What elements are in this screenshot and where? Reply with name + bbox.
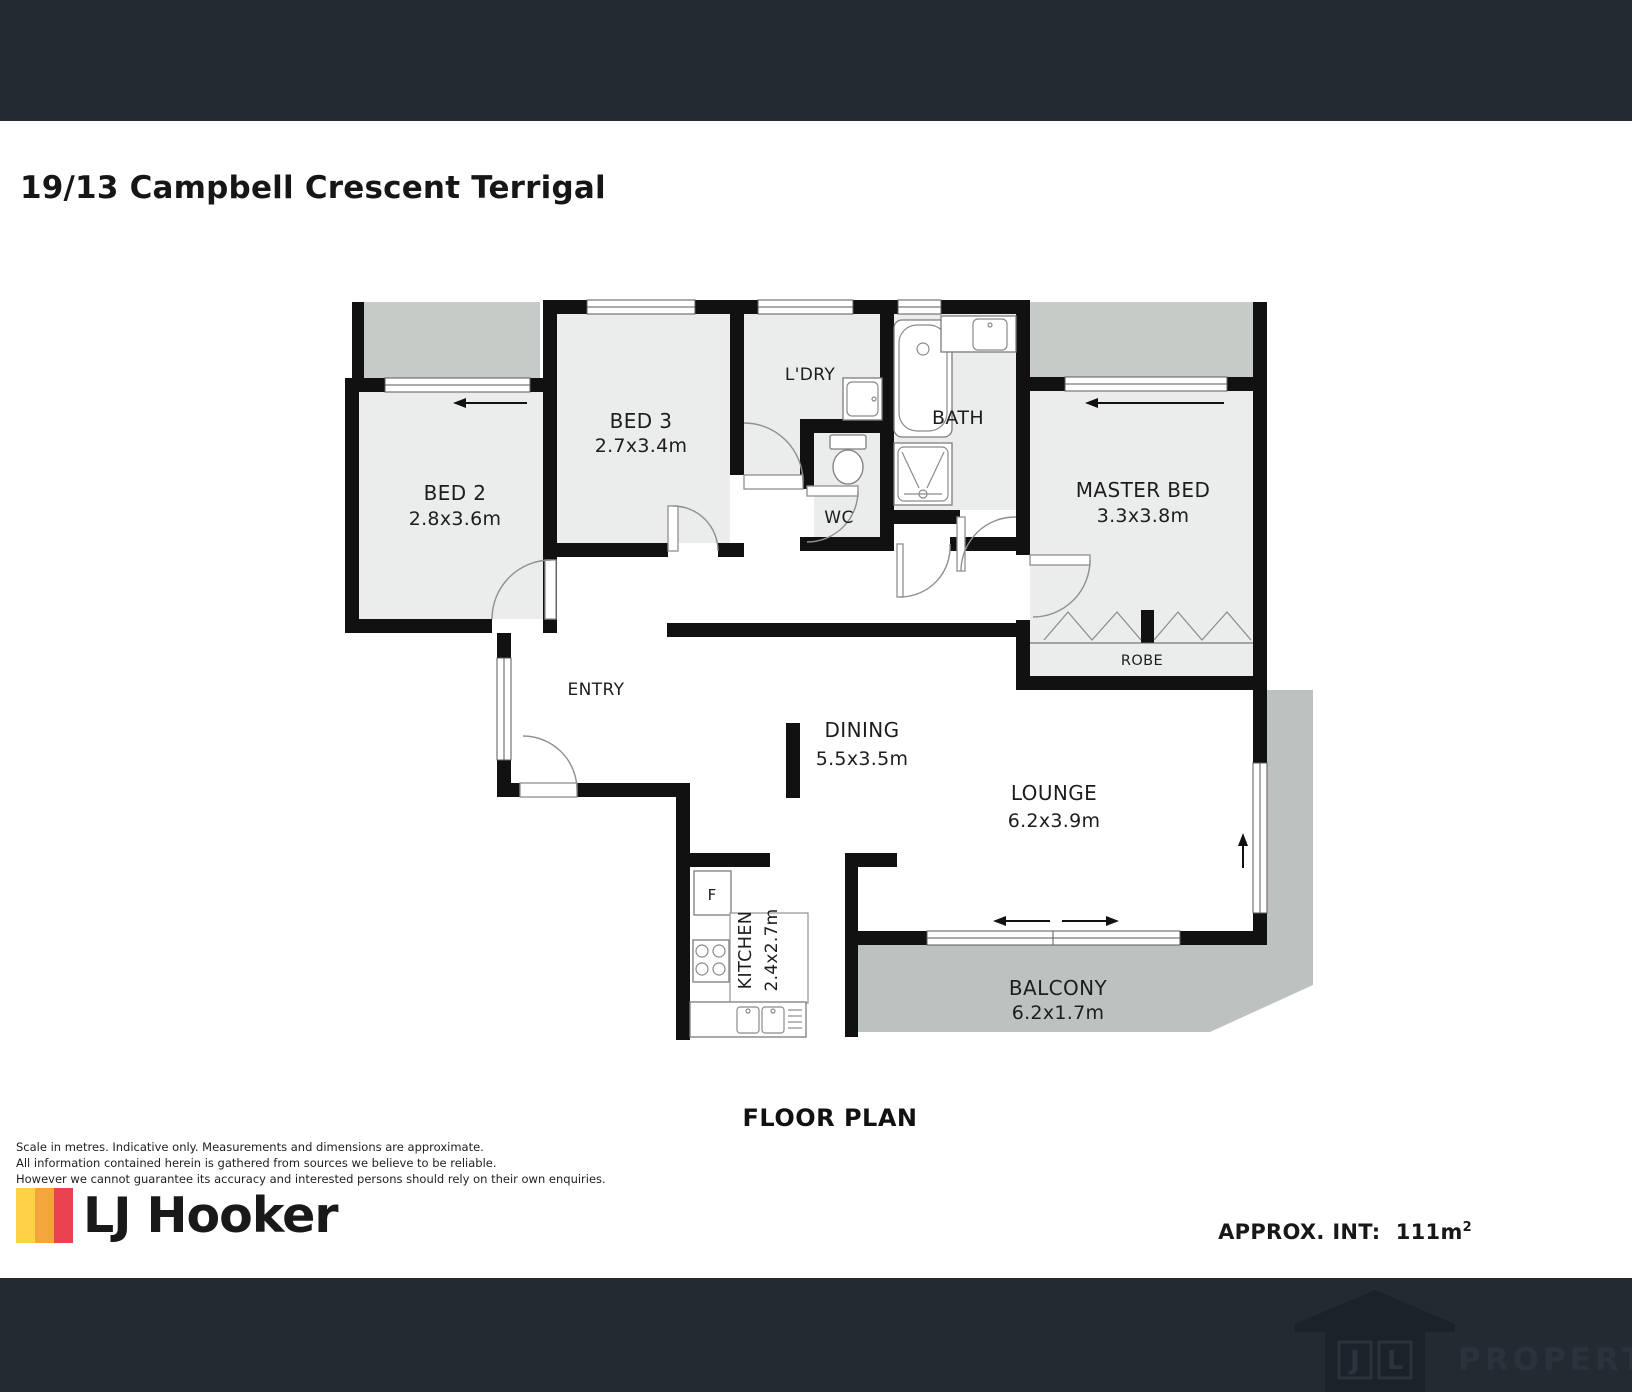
approx-sup: 2	[1463, 1220, 1472, 1235]
room-label-robe: ROBE	[1121, 653, 1163, 669]
disclaimer-line-3: However we cannot guarantee its accuracy…	[16, 1171, 606, 1187]
vanity-basin-icon	[941, 316, 1016, 352]
room-label-balcony: BALCONY	[1009, 976, 1108, 1000]
kitchen-sink-icon	[690, 1002, 806, 1037]
floor-plan-caption: FLOOR PLAN	[700, 1104, 960, 1132]
disclaimer: Scale in metres. Indicative only. Measur…	[16, 1139, 606, 1187]
window-bath	[898, 300, 941, 314]
window-master	[1065, 377, 1227, 391]
house-icon: J L	[1295, 1282, 1455, 1392]
room-label-laundry: L'DRY	[785, 365, 836, 385]
brand-logo: LJ Hooker	[16, 1188, 338, 1243]
room-label-entry: ENTRY	[568, 680, 625, 700]
room-label-dining: DINING	[824, 718, 899, 742]
floor-plan: BED 2 2.8x3.6m BED 3 2.7x3.4m L'DRY WC B…	[340, 295, 1320, 1040]
watermark-initial-2: L	[1387, 1346, 1404, 1376]
logo-stripe-yellow	[16, 1188, 35, 1243]
footer-watermark: J L PROPERTY	[1295, 1282, 1455, 1392]
room-dims-bed3: 2.7x3.4m	[595, 435, 688, 457]
footer-bar: J L PROPERTY	[0, 1278, 1632, 1392]
room-dims-master: 3.3x3.8m	[1097, 505, 1190, 527]
room-label-wc: WC	[824, 508, 853, 528]
door-entry-front	[520, 736, 577, 797]
room-dims-dining: 5.5x3.5m	[816, 748, 909, 770]
disclaimer-line-1: Scale in metres. Indicative only. Measur…	[16, 1139, 606, 1155]
room-label-kitchen: KITCHEN	[736, 911, 756, 990]
window-entry	[497, 658, 511, 760]
fridge-label: F	[708, 886, 717, 904]
room-label-master: MASTER BED	[1076, 478, 1211, 502]
window-laundry	[758, 300, 853, 314]
logo-stripe-orange	[35, 1188, 54, 1243]
room-label-lounge: LOUNGE	[1011, 781, 1097, 805]
door-hall	[897, 544, 950, 597]
toilet-icon	[830, 435, 866, 484]
sliding-door-balcony	[927, 931, 1180, 945]
watermark-text: PROPERTY	[1458, 1342, 1632, 1378]
logo-stripe-red	[54, 1188, 73, 1243]
room-label-bed3: BED 3	[610, 409, 673, 433]
brand-name: LJ Hooker	[83, 1188, 338, 1243]
patio-top-right	[1030, 302, 1267, 377]
approx-label: APPROX. INT:	[1218, 1220, 1380, 1244]
shower-icon	[894, 443, 952, 505]
slider-arrows-balcony	[993, 916, 1119, 926]
watermark-initial-1: J	[1348, 1346, 1360, 1376]
room-dims-balcony: 6.2x1.7m	[1012, 1002, 1105, 1024]
window-lounge-east	[1253, 763, 1267, 913]
room-dims-bed2: 2.8x3.6m	[409, 508, 502, 530]
patio-top-left	[352, 302, 540, 378]
approx-value: 111m	[1396, 1220, 1463, 1244]
balcony-side-strip	[1267, 690, 1313, 945]
cooktop-icon	[693, 940, 729, 982]
approx-internal-area: APPROX. INT: 111m2	[1150, 1220, 1472, 1244]
room-dims-kitchen: 2.4x2.7m	[762, 908, 782, 991]
disclaimer-line-2: All information contained herein is gath…	[16, 1155, 606, 1171]
room-label-bed2: BED 2	[424, 481, 487, 505]
window-bed3	[587, 300, 695, 314]
header-bar	[0, 0, 1632, 121]
room-dims-lounge: 6.2x3.9m	[1008, 810, 1101, 832]
slider-arrow-lounge-east	[1238, 833, 1248, 868]
room-label-bath: BATH	[932, 407, 984, 429]
page-title: 19/13 Campbell Crescent Terrigal	[20, 170, 606, 206]
laundry-tub-icon	[843, 378, 882, 420]
window-bed2	[385, 378, 530, 392]
